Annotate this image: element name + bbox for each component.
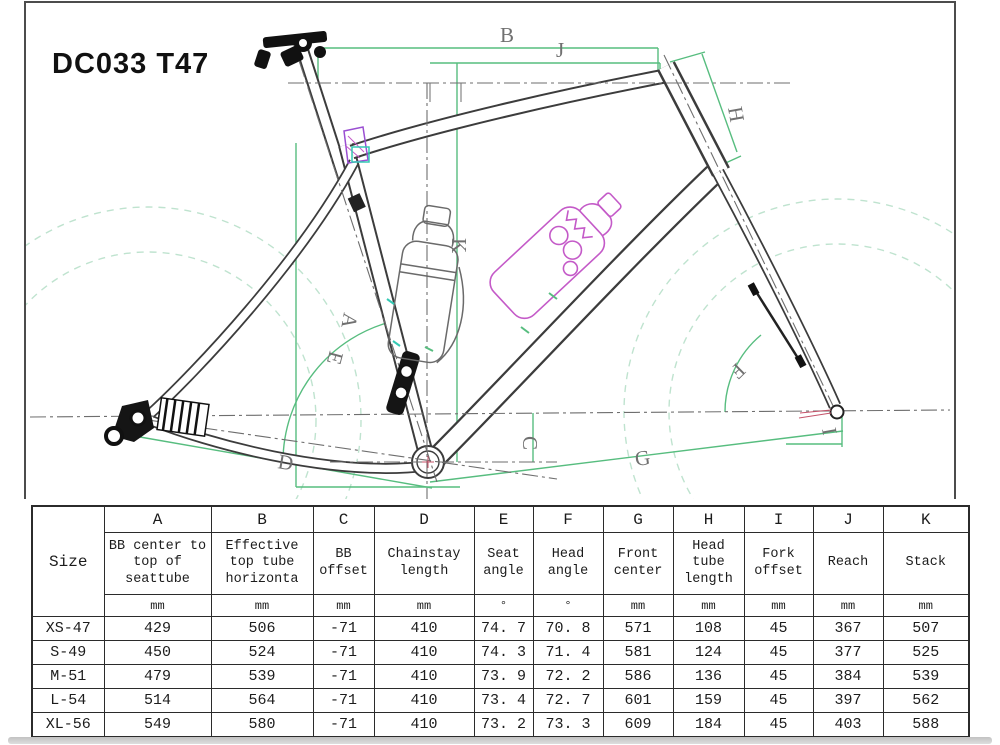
value-cell: 73. 3	[533, 713, 603, 738]
value-cell: 581	[603, 641, 673, 665]
value-cell: 71. 4	[533, 641, 603, 665]
value-cell: -71	[313, 641, 374, 665]
col-letter-i: I	[744, 506, 813, 533]
value-cell: 397	[813, 689, 883, 713]
value-cell: 124	[673, 641, 744, 665]
col-desc-c: BB offset	[313, 533, 374, 595]
col-letter-d: D	[374, 506, 474, 533]
dim-label-h: H	[723, 105, 749, 124]
col-letter-g: G	[603, 506, 673, 533]
col-unit-k: mm	[883, 595, 969, 617]
col-desc-k: Stack	[883, 533, 969, 595]
value-cell: 507	[883, 617, 969, 641]
value-cell: 377	[813, 641, 883, 665]
value-cell: 73. 9	[474, 665, 533, 689]
value-cell: 136	[673, 665, 744, 689]
table-row: S-49 450524-7141074. 371. 45811244537752…	[32, 641, 969, 665]
value-cell: 524	[211, 641, 313, 665]
col-header-size: Size	[32, 506, 104, 617]
dim-label-k: K	[447, 238, 471, 253]
value-cell: 184	[673, 713, 744, 738]
value-cell: 479	[104, 665, 211, 689]
value-cell: 588	[883, 713, 969, 738]
value-cell: 514	[104, 689, 211, 713]
col-unit-h: mm	[673, 595, 744, 617]
bike-frame-diagram: B J H K A E F C D G I	[0, 0, 1000, 505]
value-cell: 45	[744, 641, 813, 665]
table-row: XS-47 429506-7141074. 770. 8571108453675…	[32, 617, 969, 641]
table-row: L-54 514564-7141073. 472. 76011594539756…	[32, 689, 969, 713]
col-desc-g: Front center	[603, 533, 673, 595]
value-cell: 539	[883, 665, 969, 689]
value-cell: 586	[603, 665, 673, 689]
value-cell: 72. 2	[533, 665, 603, 689]
col-letter-k: K	[883, 506, 969, 533]
col-desc-i: Fork offset	[744, 533, 813, 595]
col-letter-a: A	[104, 506, 211, 533]
value-cell: 403	[813, 713, 883, 738]
value-cell: 72. 7	[533, 689, 603, 713]
value-cell: 410	[374, 689, 474, 713]
col-desc-a: BB center to top of seattube	[104, 533, 211, 595]
col-letter-c: C	[313, 506, 374, 533]
dim-label-f: F	[725, 358, 750, 383]
col-desc-b: Effective top tube horizonta	[211, 533, 313, 595]
value-cell: 571	[603, 617, 673, 641]
col-unit-g: mm	[603, 595, 673, 617]
size-cell: L-54	[32, 689, 104, 713]
value-cell: 159	[673, 689, 744, 713]
value-cell: 539	[211, 665, 313, 689]
value-cell: 410	[374, 617, 474, 641]
size-cell: S-49	[32, 641, 104, 665]
col-letter-e: E	[474, 506, 533, 533]
value-cell: -71	[313, 713, 374, 738]
dim-label-d: D	[276, 449, 295, 475]
dim-label-i: I	[817, 426, 842, 437]
value-cell: 410	[374, 713, 474, 738]
water-bottle-magenta	[484, 178, 635, 324]
value-cell: 525	[883, 641, 969, 665]
size-cell: M-51	[32, 665, 104, 689]
value-cell: 108	[673, 617, 744, 641]
col-unit-d: mm	[374, 595, 474, 617]
col-letter-h: H	[673, 506, 744, 533]
dim-label-a: A	[336, 311, 362, 331]
bottom-shadow-bar	[8, 737, 992, 744]
cassette	[157, 398, 209, 436]
geometry-table: Size A B C D E F G H I J K BB center to …	[31, 505, 970, 738]
value-cell: 450	[104, 641, 211, 665]
saddle-clamp	[254, 31, 328, 70]
size-cell: XS-47	[32, 617, 104, 641]
value-cell: 564	[211, 689, 313, 713]
value-cell: 549	[104, 713, 211, 738]
col-unit-a: mm	[104, 595, 211, 617]
dim-label-j: J	[556, 38, 564, 62]
rear-dropout	[106, 400, 154, 444]
col-unit-i: mm	[744, 595, 813, 617]
col-letter-b: B	[211, 506, 313, 533]
value-cell: 45	[744, 713, 813, 738]
col-desc-f: Head angle	[533, 533, 603, 595]
value-cell: 562	[883, 689, 969, 713]
value-cell: 506	[211, 617, 313, 641]
value-cell: 410	[374, 665, 474, 689]
front-axle	[831, 406, 844, 419]
dim-label-b: B	[500, 23, 514, 47]
value-cell: 384	[813, 665, 883, 689]
table-row: XL-56 549580-7141073. 273. 3609184454035…	[32, 713, 969, 738]
front-wheel-arc-inner	[669, 244, 1000, 505]
value-cell: -71	[313, 665, 374, 689]
value-cell: -71	[313, 689, 374, 713]
col-unit-j: mm	[813, 595, 883, 617]
dim-label-c: C	[518, 436, 542, 450]
col-desc-h: Head tube length	[673, 533, 744, 595]
col-desc-j: Reach	[813, 533, 883, 595]
value-cell: 73. 2	[474, 713, 533, 738]
value-cell: 74. 3	[474, 641, 533, 665]
col-unit-e: °	[474, 595, 533, 617]
value-cell: 74. 7	[474, 617, 533, 641]
size-cell: XL-56	[32, 713, 104, 738]
table-header: Size A B C D E F G H I J K BB center to …	[32, 506, 969, 617]
value-cell: -71	[313, 617, 374, 641]
value-cell: 601	[603, 689, 673, 713]
value-cell: 429	[104, 617, 211, 641]
table-body: XS-47 429506-7141074. 770. 8571108453675…	[32, 617, 969, 738]
col-unit-f: °	[533, 595, 603, 617]
value-cell: 73. 4	[474, 689, 533, 713]
col-letter-j: J	[813, 506, 883, 533]
value-cell: 580	[211, 713, 313, 738]
value-cell: 609	[603, 713, 673, 738]
col-letter-f: F	[533, 506, 603, 533]
value-cell: 70. 8	[533, 617, 603, 641]
value-cell: 45	[744, 617, 813, 641]
value-cell: 45	[744, 665, 813, 689]
col-unit-b: mm	[211, 595, 313, 617]
dim-label-g: G	[633, 445, 651, 471]
col-desc-e: Seat angle	[474, 533, 533, 595]
dim-label-e: E	[322, 349, 349, 368]
value-cell: 410	[374, 641, 474, 665]
spec-sheet: { "title": "DC033 T47", "diagram": { "la…	[0, 0, 1000, 745]
col-desc-d: Chainstay length	[374, 533, 474, 595]
col-unit-c: mm	[313, 595, 374, 617]
table-row: M-51 479539-7141073. 972. 25861364538453…	[32, 665, 969, 689]
value-cell: 45	[744, 689, 813, 713]
value-cell: 367	[813, 617, 883, 641]
